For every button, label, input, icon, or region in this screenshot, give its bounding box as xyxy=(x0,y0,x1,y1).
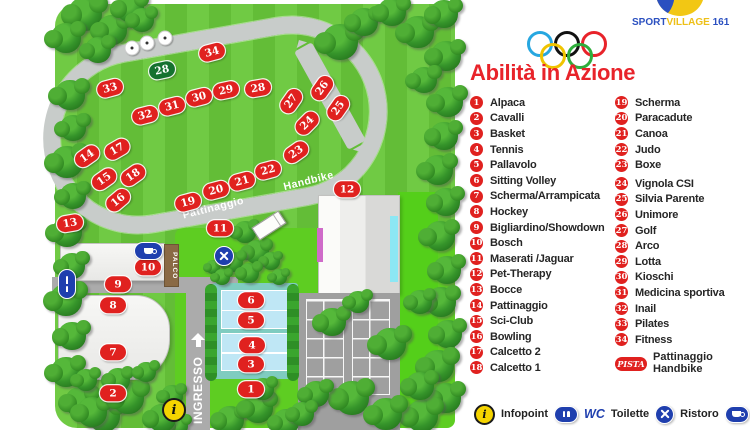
cup-icon xyxy=(732,411,741,417)
legend-label: Hockey xyxy=(490,206,528,218)
tree-icon xyxy=(430,122,458,150)
legend-label: Medicina sportiva xyxy=(635,287,725,299)
pista-label: Pattinaggio Handbike xyxy=(653,352,713,375)
legend-label: Scherma xyxy=(635,97,680,109)
tree-icon xyxy=(434,320,462,348)
legend-item: 32Inail xyxy=(615,301,750,317)
bar-legend-icon xyxy=(725,406,749,423)
entrance-arrow-icon xyxy=(191,333,205,347)
tree-icon xyxy=(51,23,81,53)
legend-item: 17Calcetto 2 xyxy=(470,345,615,361)
legend-label: Calcetto 2 xyxy=(490,346,541,358)
legend-column-1: 1Alpaca2Cavalli3Basket4Tennis5Pallavolo6… xyxy=(470,95,615,376)
infopoint-legend-icon: i xyxy=(474,404,495,425)
archery-target-icon xyxy=(158,31,173,46)
legend-item: 33Pilates xyxy=(615,316,750,332)
legend-item: 9Bigliardino/Showdown xyxy=(470,220,615,236)
tree-icon xyxy=(130,8,154,32)
legend-badge: 3 xyxy=(470,127,483,140)
legend-label: Scherma/Arrampicata xyxy=(490,190,600,202)
tree-icon xyxy=(425,221,455,251)
legend-item: 14Pattinaggio xyxy=(470,298,615,314)
tree-icon xyxy=(75,369,97,391)
legend-badge: 33 xyxy=(615,318,628,331)
legend-badge: 20 xyxy=(615,112,628,125)
legend-label: Pallavolo xyxy=(490,159,537,171)
legend-label: Golf xyxy=(635,225,656,237)
tree-icon xyxy=(378,0,406,26)
legend-badge: 12 xyxy=(470,268,483,281)
legend-item: 18Calcetto 1 xyxy=(470,360,615,376)
palco-label: PALCO xyxy=(164,244,179,287)
infopoint-map-icon: i xyxy=(162,398,186,422)
legend-badge: 16 xyxy=(470,330,483,343)
legend-label: Tennis xyxy=(490,144,523,156)
legend-item: 25Silvia Parente xyxy=(615,192,750,208)
legend-label: Bocce xyxy=(490,284,522,296)
legend-badge: 11 xyxy=(470,252,483,265)
map-marker-6: 6 xyxy=(238,292,264,308)
legend-item: 16Bowling xyxy=(470,329,615,345)
site-map: PALCO Pattinaggio Handbike INGRESSO i xyxy=(0,0,466,430)
legend-item: 21Canoa xyxy=(615,126,750,142)
sport-village-logo: SPORTVILLAGE 161 xyxy=(632,0,747,32)
legend-label: Paracadute xyxy=(635,112,692,124)
legend-label: Maserati /Jaguar xyxy=(490,253,574,265)
legend-badge: 4 xyxy=(470,143,483,156)
legend-label: Pet-Therapy xyxy=(490,268,551,280)
legend-item: 1Alpaca xyxy=(470,95,615,111)
map-marker-10: 10 xyxy=(135,259,161,275)
footer-infopoint-label: Infopoint xyxy=(501,408,548,420)
map-marker-11: 11 xyxy=(207,220,233,236)
legend-label: Calcetto 1 xyxy=(490,362,541,374)
legend-badge: 2 xyxy=(470,112,483,125)
pista-badge: PISTA xyxy=(615,357,647,371)
legend-badge: 6 xyxy=(470,174,483,187)
tree-icon xyxy=(406,372,434,400)
ristoro-map-icon xyxy=(214,246,234,266)
wc-figure-icon xyxy=(567,411,570,417)
legend-label: Judo xyxy=(635,144,660,156)
legend-item: 6Sitting Volley xyxy=(470,173,615,189)
tree-icon xyxy=(374,328,406,360)
legend-item: 7Scherma/Arrampicata xyxy=(470,189,615,205)
legend-item: 19Scherma xyxy=(615,95,750,111)
legend-item: 11Maserati /Jaguar xyxy=(470,251,615,267)
legend-item: 15Sci-Club xyxy=(470,313,615,329)
map-marker-5: 5 xyxy=(238,312,264,328)
map-marker-8: 8 xyxy=(100,297,126,313)
wc-figure-icon xyxy=(563,411,566,417)
legend-badge: 28 xyxy=(615,240,628,253)
tree-icon xyxy=(370,398,402,430)
tree-icon xyxy=(433,256,461,284)
tree-icon xyxy=(239,263,259,283)
tree-icon xyxy=(60,115,86,141)
legend-badge: 31 xyxy=(615,286,628,299)
legend-column-2: 19Scherma20Paracadute21Canoa22Judo23Boxe… xyxy=(615,95,750,348)
legend-label: Pattinaggio xyxy=(490,300,548,312)
legend-label: Fitness xyxy=(635,334,672,346)
tree-icon xyxy=(406,400,438,430)
wc-figure-icon xyxy=(66,276,69,284)
legend-badge: 17 xyxy=(470,346,483,359)
legend-item: 13Bocce xyxy=(470,282,615,298)
legend-badge: 30 xyxy=(615,271,628,284)
legend-item: 31Medicina sportiva xyxy=(615,285,750,301)
legend-badge: 19 xyxy=(615,96,628,109)
legend-label: Inail xyxy=(635,303,656,315)
legend-item: 4Tennis xyxy=(470,142,615,158)
building-magenta-strip xyxy=(317,228,323,262)
tree-icon xyxy=(60,183,86,209)
legend-item: 29Lotta xyxy=(615,254,750,270)
legend-item: 3Basket xyxy=(470,126,615,142)
tree-icon xyxy=(432,188,460,216)
legend-item: 5Pallavolo xyxy=(470,157,615,173)
legend-badge: 5 xyxy=(470,159,483,172)
archery-target-icon xyxy=(125,41,140,56)
legend-item: 34Fitness xyxy=(615,332,750,348)
legend-label: Unimore xyxy=(635,209,678,221)
entrance-label: INGRESSO xyxy=(189,350,207,424)
legend-item: 10Bosch xyxy=(470,235,615,251)
legend-badge: 8 xyxy=(470,205,483,218)
footer-wc-label: WC xyxy=(584,407,605,421)
legend-badge: 9 xyxy=(470,221,483,234)
legend-badge: 24 xyxy=(615,177,628,190)
legend-label: Silvia Parente xyxy=(635,193,704,205)
map-marker-12: 12 xyxy=(334,181,360,197)
legend-badge: 21 xyxy=(615,127,628,140)
legend-item: 20Paracadute xyxy=(615,111,750,127)
flyer-page: PALCO Pattinaggio Handbike INGRESSO i xyxy=(0,0,750,430)
tree-icon xyxy=(136,362,156,382)
legend-item: 23Boxe xyxy=(615,157,750,173)
tree-icon xyxy=(77,397,107,427)
legend-label: Bosch xyxy=(490,237,523,249)
map-marker-2: 2 xyxy=(100,385,126,401)
legend-label: Cavalli xyxy=(490,112,524,124)
legend-item: 2Cavalli xyxy=(470,111,615,127)
tree-icon xyxy=(85,37,111,63)
legend-label: Sitting Volley xyxy=(490,175,556,187)
tree-icon xyxy=(55,80,85,110)
legend-label: Vignola CSI xyxy=(635,178,694,190)
page-title: Abilità in Azione xyxy=(470,60,635,86)
legend-badge: 13 xyxy=(470,283,483,296)
legend-label: Pilates xyxy=(635,318,669,330)
wc-figure-icon xyxy=(66,286,69,292)
legend-badge: 23 xyxy=(615,159,628,172)
legend-badge: 27 xyxy=(615,224,628,237)
legend-item: 27Golf xyxy=(615,223,750,239)
legend-badge: 14 xyxy=(470,299,483,312)
legend-label: Lotta xyxy=(635,256,661,268)
legend-badge: 32 xyxy=(615,302,628,315)
tree-icon xyxy=(318,308,346,336)
legend-item: 26Unimore xyxy=(615,207,750,223)
ristoro-legend-icon xyxy=(655,405,674,424)
tree-icon xyxy=(262,252,280,270)
legend-label: Kioschi xyxy=(635,271,673,283)
archery-target-icon xyxy=(140,36,155,51)
wc-legend-icon xyxy=(554,406,578,423)
map-marker-4: 4 xyxy=(239,337,265,353)
tree-icon xyxy=(290,402,314,426)
legend-label: Bowling xyxy=(490,331,531,343)
tree-icon xyxy=(423,155,453,185)
tree-icon xyxy=(430,0,458,28)
tree-icon xyxy=(411,67,437,93)
legend-label: Alpaca xyxy=(490,97,525,109)
map-marker-9: 9 xyxy=(105,276,131,292)
legend-badge: 18 xyxy=(470,361,483,374)
legend-label: Basket xyxy=(490,128,525,140)
legend-label: Boxe xyxy=(635,159,661,171)
tree-icon xyxy=(58,322,86,350)
map-marker-7: 7 xyxy=(100,344,126,360)
footer-ristoro-label: Ristoro xyxy=(680,408,719,420)
logo-text: SPORTVILLAGE 161 xyxy=(632,17,747,28)
tree-icon xyxy=(347,291,369,313)
legend-item: 12Pet-Therapy xyxy=(470,267,615,283)
legend-item: 30Kioschi xyxy=(615,270,750,286)
legend-item: 22Judo xyxy=(615,142,750,158)
legend-badge: 22 xyxy=(615,143,628,156)
cup-icon xyxy=(144,248,153,254)
legend-label: Arco xyxy=(635,240,659,252)
legend-badge: 10 xyxy=(470,237,483,250)
legend-badge: 15 xyxy=(470,315,483,328)
tree-icon xyxy=(433,87,463,117)
hedge-right xyxy=(287,284,299,381)
building-pet-therapy xyxy=(318,195,400,294)
legend-badge: 26 xyxy=(615,208,628,221)
legend-badge: 29 xyxy=(615,255,628,268)
legend-label: Bigliardino/Showdown xyxy=(490,222,605,234)
legend-item: 28Arco xyxy=(615,238,750,254)
legend-footer: i Infopoint WC Toilette Ristoro Bar xyxy=(474,402,746,426)
tree-icon xyxy=(408,290,432,314)
tree-icon xyxy=(214,269,230,285)
map-marker-1: 1 xyxy=(238,381,264,397)
tree-icon xyxy=(271,269,287,285)
wc-map-icon xyxy=(58,269,76,299)
logo-shield-icon xyxy=(656,0,704,16)
map-marker-3: 3 xyxy=(238,356,264,372)
legend-label: Canoa xyxy=(635,128,668,140)
legend-badge: 7 xyxy=(470,190,483,203)
footer-toilette-label: Toilette xyxy=(611,408,649,420)
legend-badge: 25 xyxy=(615,193,628,206)
legend-label: Sci-Club xyxy=(490,315,533,327)
legend-item: 24Vignola CSI xyxy=(615,176,750,192)
legend-badge: 1 xyxy=(470,96,483,109)
building-cyan-strip xyxy=(390,216,398,282)
bar-map-icon xyxy=(134,242,163,260)
legend-item-pista: PISTA Pattinaggio Handbike xyxy=(615,352,713,375)
legend-item: 8Hockey xyxy=(470,204,615,220)
legend-badge: 34 xyxy=(615,333,628,346)
